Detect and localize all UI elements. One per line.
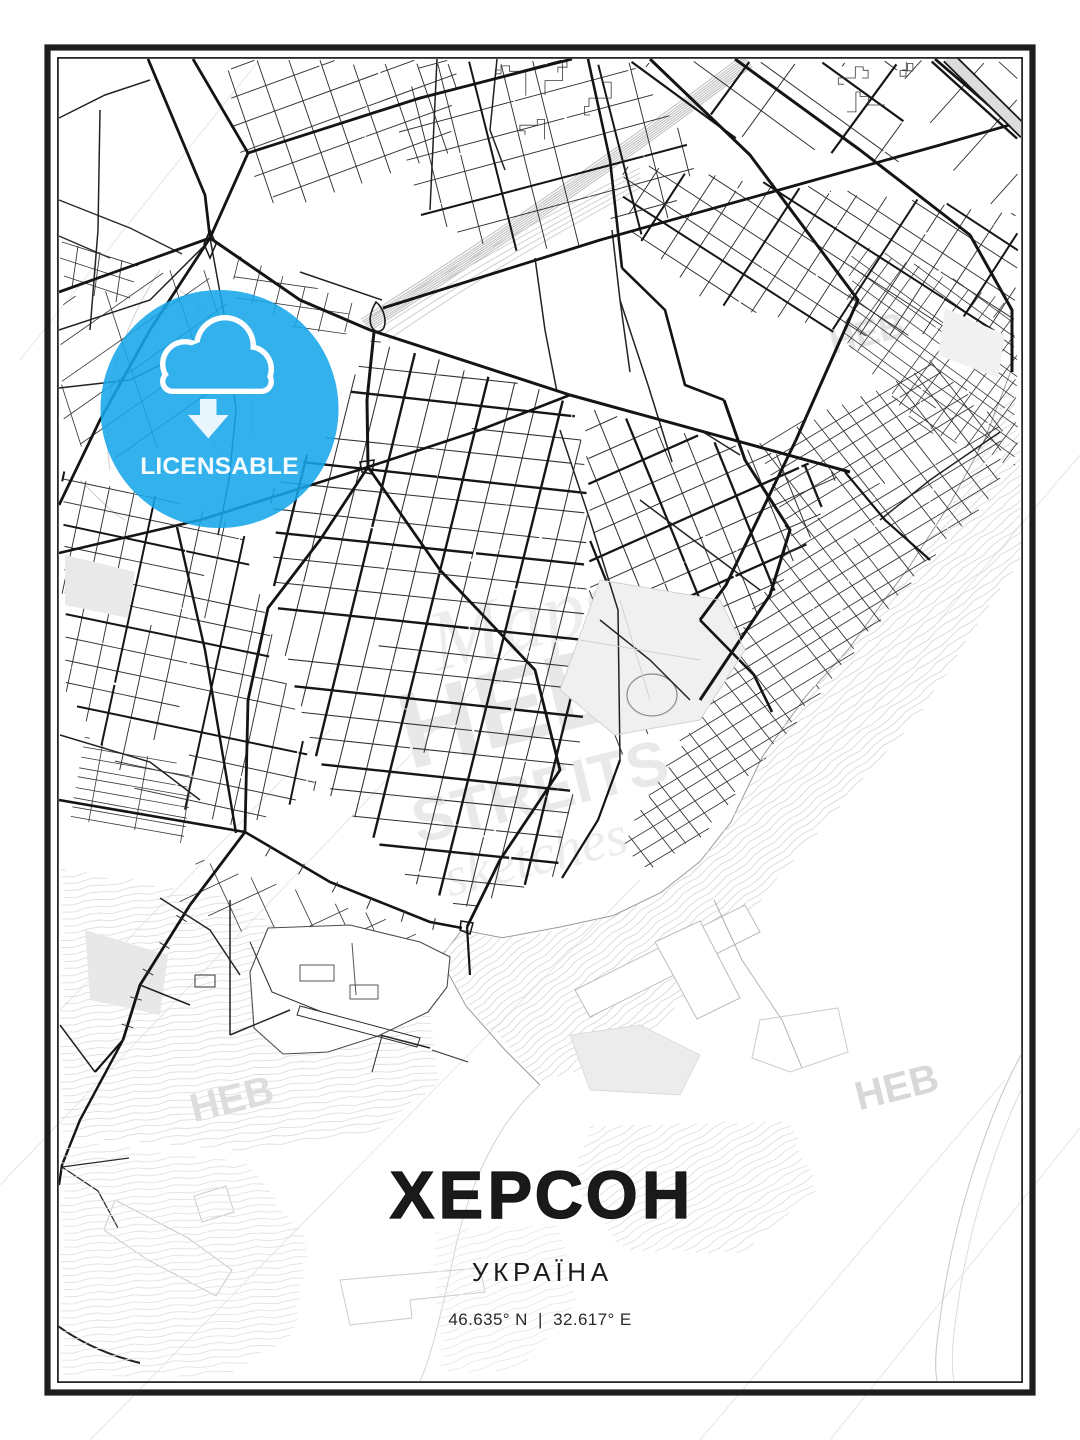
- svg-text:LICENSABLE: LICENSABLE: [140, 453, 299, 480]
